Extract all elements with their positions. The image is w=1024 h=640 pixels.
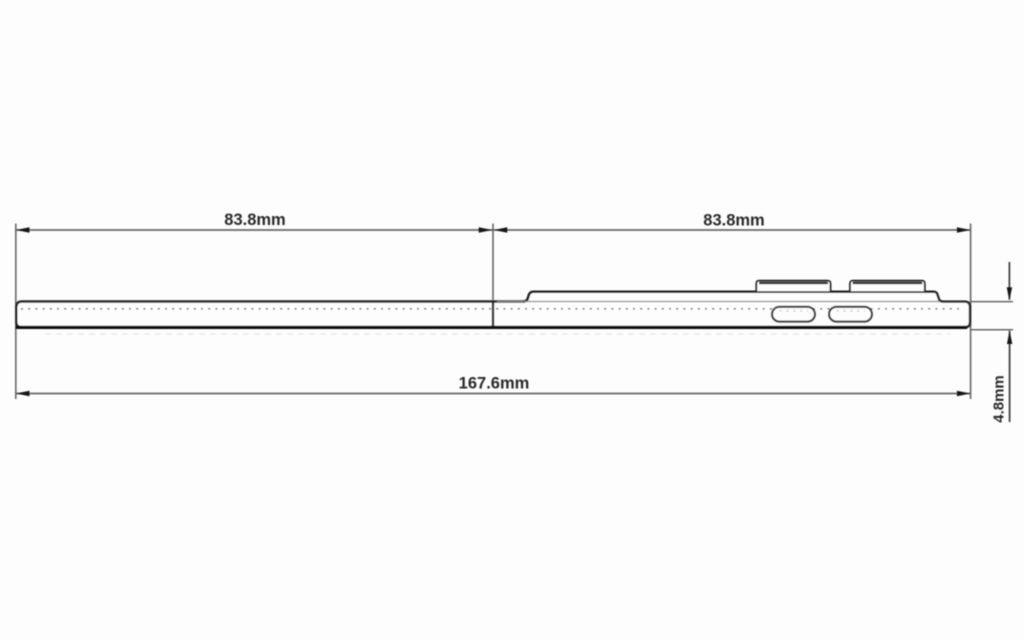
svg-text:83.8mm: 83.8mm xyxy=(224,211,285,229)
svg-text:4.8mm: 4.8mm xyxy=(990,375,1007,423)
svg-text:83.8mm: 83.8mm xyxy=(703,212,764,230)
svg-text:167.6mm: 167.6mm xyxy=(459,375,530,393)
